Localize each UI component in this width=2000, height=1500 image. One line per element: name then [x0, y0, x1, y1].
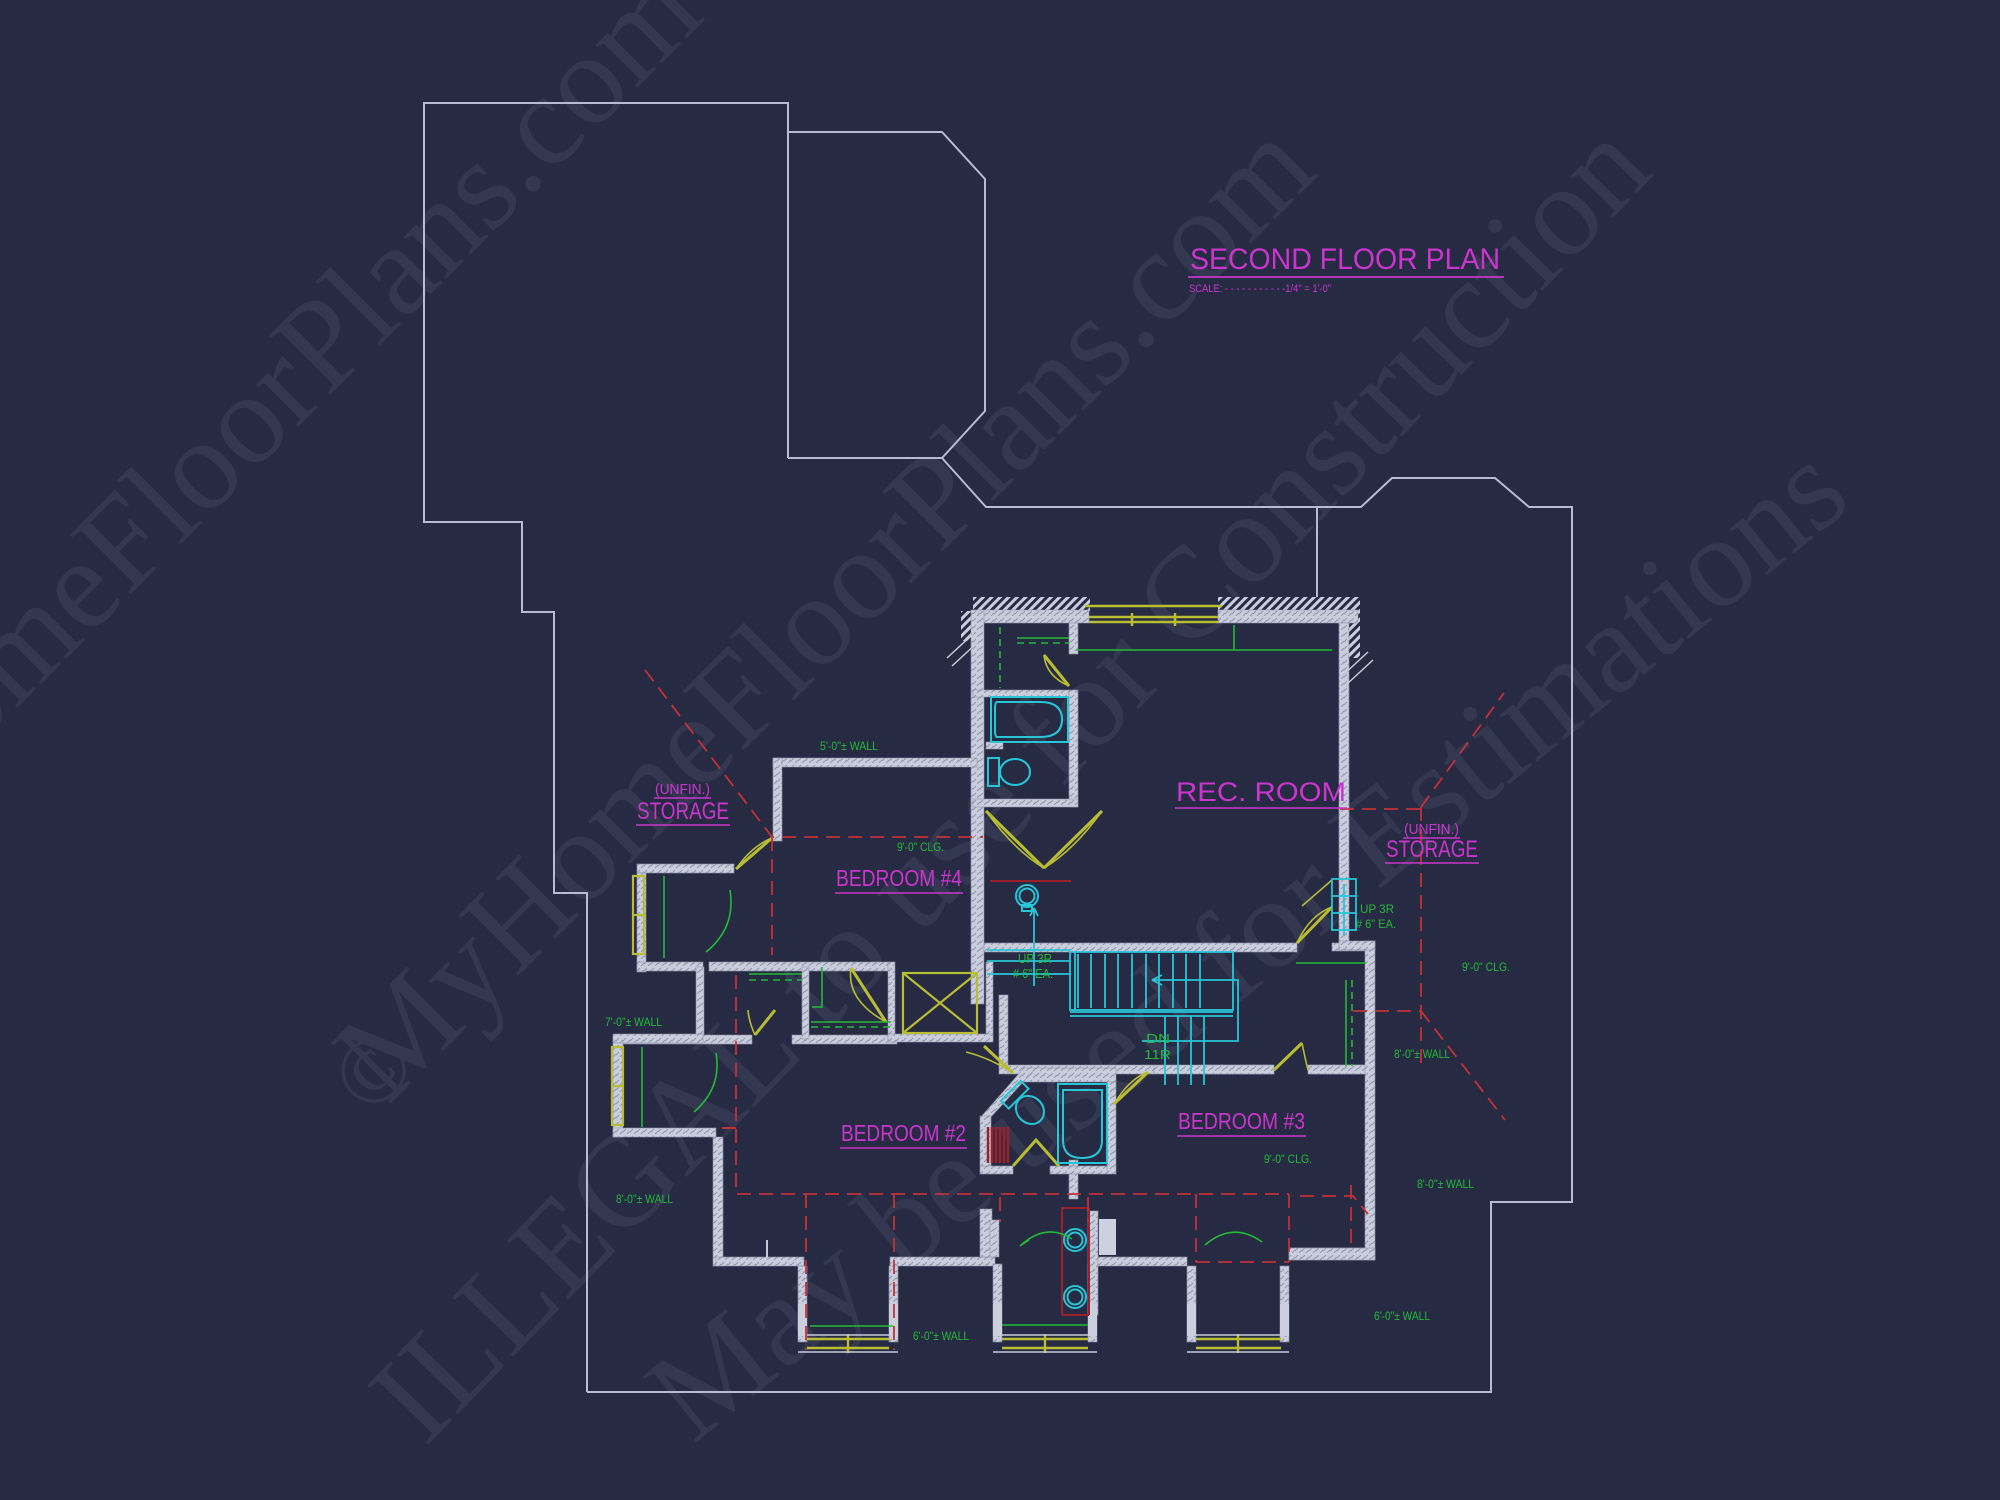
svg-text:6'-0"± WALL: 6'-0"± WALL: [1374, 1309, 1430, 1323]
svg-text:9'-0" CLG.: 9'-0" CLG.: [1462, 960, 1510, 974]
svg-text:# 6" EA.: # 6" EA.: [1356, 919, 1396, 931]
svg-text:5'-0"± WALL: 5'-0"± WALL: [820, 739, 878, 753]
svg-text:11R: 11R: [1144, 1047, 1171, 1062]
svg-text:SECOND FLOOR PLAN: SECOND FLOOR PLAN: [1190, 243, 1500, 276]
svg-text:UP 3R: UP 3R: [1018, 952, 1052, 966]
svg-text:REC. ROOM: REC. ROOM: [1176, 777, 1346, 807]
svg-text:STORAGE: STORAGE: [637, 798, 729, 825]
svg-text:BEDROOM #4: BEDROOM #4: [836, 865, 962, 891]
svg-text:(UNFIN.): (UNFIN.): [655, 781, 710, 798]
svg-text:BEDROOM #3: BEDROOM #3: [1178, 1108, 1305, 1134]
svg-text:DN: DN: [1146, 1031, 1170, 1046]
svg-text:# 6" EA.: # 6" EA.: [1013, 967, 1053, 981]
svg-text:STORAGE: STORAGE: [1386, 836, 1478, 863]
svg-text:BEDROOM #2: BEDROOM #2: [841, 1120, 966, 1146]
svg-text:8'-0"± WALL: 8'-0"± WALL: [1394, 1047, 1450, 1061]
svg-text:SCALE: - - - - - - - - - - -1/: SCALE: - - - - - - - - - - -1/4" = 1'-0": [1189, 283, 1331, 295]
svg-text:9'-0" CLG.: 9'-0" CLG.: [1264, 1152, 1312, 1166]
svg-text:9'-0" CLG.: 9'-0" CLG.: [897, 840, 944, 854]
svg-text:8'-0"± WALL: 8'-0"± WALL: [1417, 1177, 1474, 1191]
svg-text:8'-0"± WALL: 8'-0"± WALL: [616, 1192, 673, 1206]
svg-text:7'-0"± WALL: 7'-0"± WALL: [605, 1015, 662, 1029]
svg-text:UP 3R: UP 3R: [1360, 904, 1394, 916]
svg-text:6'-0"± WALL: 6'-0"± WALL: [913, 1329, 969, 1343]
